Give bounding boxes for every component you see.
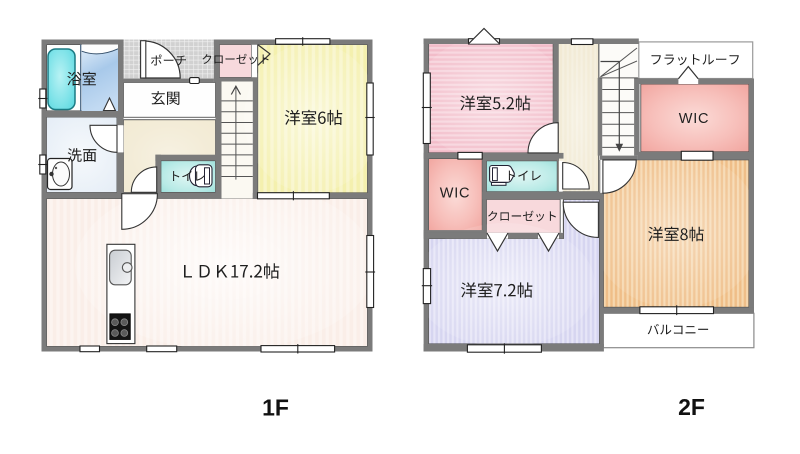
svg-text:1F: 1F (262, 395, 289, 421)
svg-text:2F: 2F (678, 394, 705, 420)
svg-text:WIC: WIC (440, 186, 471, 202)
svg-text:WIC: WIC (679, 111, 710, 127)
